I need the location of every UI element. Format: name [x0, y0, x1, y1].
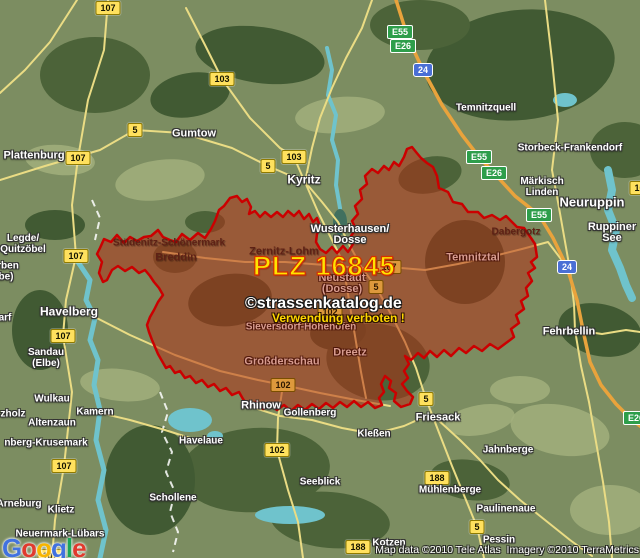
road-shield-yellow-107: 107 [51, 459, 76, 473]
town-schollene-line: Schollene [149, 493, 196, 504]
town-rben: rben [0, 261, 19, 272]
town-jahnberge: Jahnberge [483, 445, 534, 456]
town-plattenburg: Plattenburg [3, 151, 64, 162]
town-rhinow: Rhinow [241, 401, 281, 412]
town-legde: Legde/Quitzöbel [0, 233, 46, 255]
town-kyritz-line: Kyritz [287, 175, 320, 186]
town-altenzaun: Altenzaun [28, 418, 76, 429]
road-shield-yellow-107: 107 [95, 1, 120, 15]
town-mühlenberge: Mühlenberge [419, 485, 481, 496]
road-shield-yellow-107: 107 [65, 151, 90, 165]
town-ruppiner-line: See [588, 233, 636, 244]
watermark-warning: Verwendung verboten ! [272, 311, 405, 325]
town-arf: arf [0, 313, 11, 324]
town-klietz: Klietz [48, 505, 75, 516]
road-shield-green-e55: E55 [526, 208, 552, 222]
road-shield-tinted-102: 102 [270, 378, 295, 392]
town-havelaue-line: Havelaue [179, 436, 223, 447]
town-breddin: Breddin [155, 253, 197, 264]
road-shield-yellow-5: 5 [418, 392, 433, 406]
town-be: be) [0, 272, 14, 283]
town-märkisch-line: Linden [520, 187, 563, 198]
town-havelberg: Havelberg [40, 307, 98, 318]
road-shield-blue-24: 24 [557, 260, 577, 274]
town-kyritz: Kyritz [287, 175, 320, 186]
road-shield-yellow-107: 107 [50, 329, 75, 343]
road-shield-green-e55: E55 [466, 150, 492, 164]
town-gumtow-line: Gumtow [172, 129, 216, 140]
town-märkisch-line: Märkisch [520, 176, 563, 187]
town-wusterhausen-line: Dosse [311, 235, 390, 246]
town-nberg-krusemark: nberg-Krusemark [4, 438, 87, 449]
map-canvas[interactable]: 1071035107103510710710710251885188107167… [0, 0, 640, 558]
town-jahnberge-line: Jahnberge [483, 445, 534, 456]
town-gollenberg: Gollenberg [284, 408, 337, 419]
town-friesack: Friesack [416, 413, 461, 424]
road-shield-yellow-107: 107 [63, 249, 88, 263]
town-kleßen-line: Kleßen [357, 429, 390, 440]
town-arneburg-line: Arneburg [0, 499, 42, 510]
town-storbeck-frankendorf: Storbeck-Frankendorf [518, 143, 622, 154]
town-rben-line: rben [0, 261, 19, 272]
road-shield-yellow-5: 5 [469, 520, 484, 534]
road-shield-yellow-102: 102 [264, 443, 289, 457]
google-logo-letter: e [72, 533, 85, 558]
town-fehrbellin: Fehrbellin [543, 327, 596, 338]
town-wusterhausen: Wusterhausen/Dosse [311, 224, 390, 246]
town-zholz-line: zholz [1, 409, 26, 420]
town-seeblick: Seeblick [300, 477, 341, 488]
town-altenzaun-line: Altenzaun [28, 418, 76, 429]
town-ruppiner: RuppinerSee [588, 222, 636, 244]
plz-region-label: PLZ 16845 [253, 251, 396, 282]
google-logo-letter: G [2, 533, 21, 558]
town-dreetz-line: Dreetz [333, 348, 367, 359]
town-legde-line: Legde/ [0, 233, 46, 244]
town-havelaue: Havelaue [179, 436, 223, 447]
town-arneburg: Arneburg [0, 499, 42, 510]
town-neuruppin-line: Neuruppin [560, 197, 625, 208]
town-dabergotz: Dabergotz [492, 227, 541, 238]
town-großderschau-line: Großderschau [244, 357, 319, 368]
road-shield-yellow-103: 103 [209, 72, 234, 86]
town-plattenburg-line: Plattenburg [3, 151, 64, 162]
town-nberg-krusemark-line: nberg-Krusemark [4, 438, 87, 449]
town-märkisch: MärkischLinden [520, 176, 563, 198]
town-mühlenberge-line: Mühlenberge [419, 485, 481, 496]
road-shield-green-e55: E55 [387, 25, 413, 39]
town-temnitzquell: Temnitzquell [456, 103, 516, 114]
town-havelberg-line: Havelberg [40, 307, 98, 318]
town-wulkau-line: Wulkau [34, 394, 69, 405]
town-legde-line: Quitzöbel [0, 244, 46, 255]
town-stüdenitz-schönermark-line: Stüdenitz-Schönermark [113, 238, 225, 249]
road-shield-yellow-103: 103 [281, 150, 306, 164]
google-logo-letter: o [36, 533, 51, 558]
town-paulinenaue: Paulinenaue [477, 504, 536, 515]
town-sandau-line: (Elbe) [28, 358, 64, 369]
town-temnitzquell-line: Temnitzquell [456, 103, 516, 114]
road-shield-yellow-188: 188 [424, 471, 449, 485]
town-be-line: be) [0, 272, 14, 283]
road-shield-yellow-5: 5 [260, 159, 275, 173]
town-schollene: Schollene [149, 493, 196, 504]
town-storbeck-frankendorf-line: Storbeck-Frankendorf [518, 143, 622, 154]
town-rhinow-line: Rhinow [241, 401, 281, 412]
town-temnitztal-line: Temnitztal [446, 253, 500, 264]
town-kamern: Kamern [76, 407, 113, 418]
town-klietz-line: Klietz [48, 505, 75, 516]
map-attribution: Map data ©2010 Tele Atlas Imagery ©2010 … [375, 544, 639, 556]
town-dreetz: Dreetz [333, 348, 367, 359]
town-gumtow: Gumtow [172, 129, 216, 140]
road-shield-yellow-188: 188 [345, 540, 370, 554]
town-seeblick-line: Seeblick [300, 477, 341, 488]
town-paulinenaue-line: Paulinenaue [477, 504, 536, 515]
road-shield-yellow-167: 167 [629, 181, 640, 195]
town-temnitztal: Temnitztal [446, 253, 500, 264]
town-sandau-line: Sandau [28, 347, 64, 358]
town-sandau: Sandau(Elbe) [28, 347, 64, 369]
road-shield-green-e26: E26 [390, 39, 416, 53]
road-shield-yellow-5: 5 [127, 123, 142, 137]
road-shield-green-e26: E26 [481, 166, 507, 180]
town-arf-line: arf [0, 313, 11, 324]
town-gollenberg-line: Gollenberg [284, 408, 337, 419]
town-fehrbellin-line: Fehrbellin [543, 327, 596, 338]
town-großderschau: Großderschau [244, 357, 319, 368]
road-shield-blue-24: 24 [413, 63, 433, 77]
town-kleßen: Kleßen [357, 429, 390, 440]
road-shield-green-e26: E26 [623, 411, 640, 425]
google-logo[interactable]: Google [2, 533, 86, 558]
town-zholz: zholz [1, 409, 26, 420]
google-logo-letter: o [21, 533, 36, 558]
town-wulkau: Wulkau [34, 394, 69, 405]
town-neustadt-line: (Dosse) [318, 284, 365, 295]
town-friesack-line: Friesack [416, 413, 461, 424]
road-shield-tinted-5: 5 [368, 280, 383, 294]
town-dabergotz-line: Dabergotz [492, 227, 541, 238]
town-breddin-line: Breddin [155, 253, 197, 264]
town-neuruppin: Neuruppin [560, 197, 625, 208]
town-kamern-line: Kamern [76, 407, 113, 418]
google-logo-letter: g [51, 533, 66, 558]
town-stüdenitz-schönermark: Stüdenitz-Schönermark [113, 238, 225, 249]
